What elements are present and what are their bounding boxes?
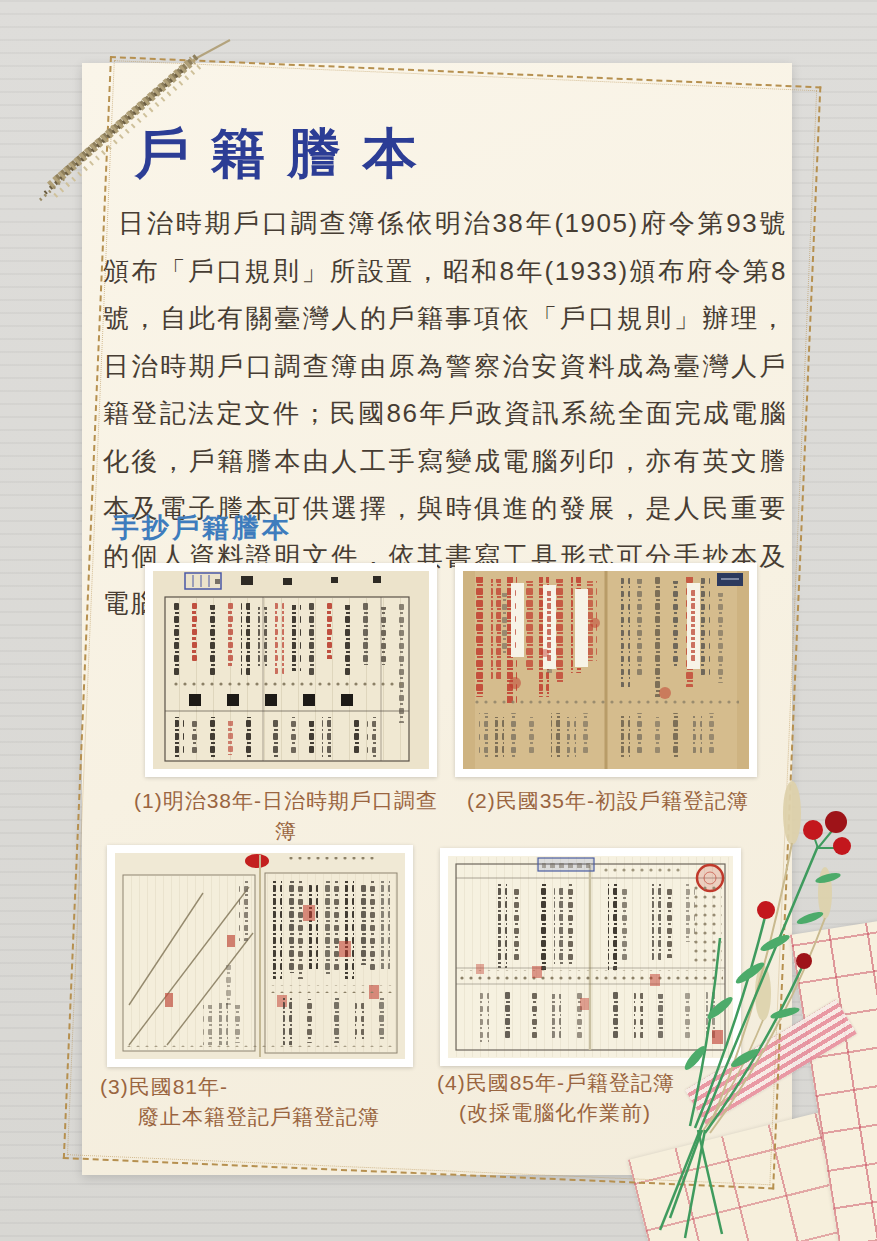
page-background: 戶籍謄本 日治時期戶口調查簿係依明治38年(1905)府令第93號頒布「戶口規則…	[0, 0, 877, 1241]
figure-caption-3: (3)民國81年- 廢止本籍登記戶籍登記簿	[100, 1072, 430, 1132]
figure-caption-2: (2)民國35年-初設戶籍登記簿	[455, 786, 761, 816]
photo-registry-1992	[107, 845, 413, 1067]
caption-text: (1)明治38年-日治時期戶口調查簿	[134, 789, 438, 842]
photo-registry-1996	[440, 848, 741, 1066]
page-title: 戶籍謄本	[135, 118, 439, 191]
caption-line: 廢止本籍登記戶籍登記簿	[100, 1102, 430, 1132]
photo-household-survey-1905	[145, 563, 437, 777]
navy-stamp-icon	[717, 573, 743, 586]
caption-text: (2)民國35年-初設戶籍登記簿	[467, 789, 749, 812]
caption-line: (3)民國81年-	[100, 1072, 430, 1102]
blue-stamp-icon	[538, 858, 594, 871]
section-heading: 手抄戶籍謄本	[112, 510, 292, 546]
photo-initial-registry-1946	[455, 563, 757, 777]
figure-caption-1: (1)明治38年-日治時期戶口調查簿	[133, 786, 439, 846]
red-mark-icon	[245, 854, 269, 868]
